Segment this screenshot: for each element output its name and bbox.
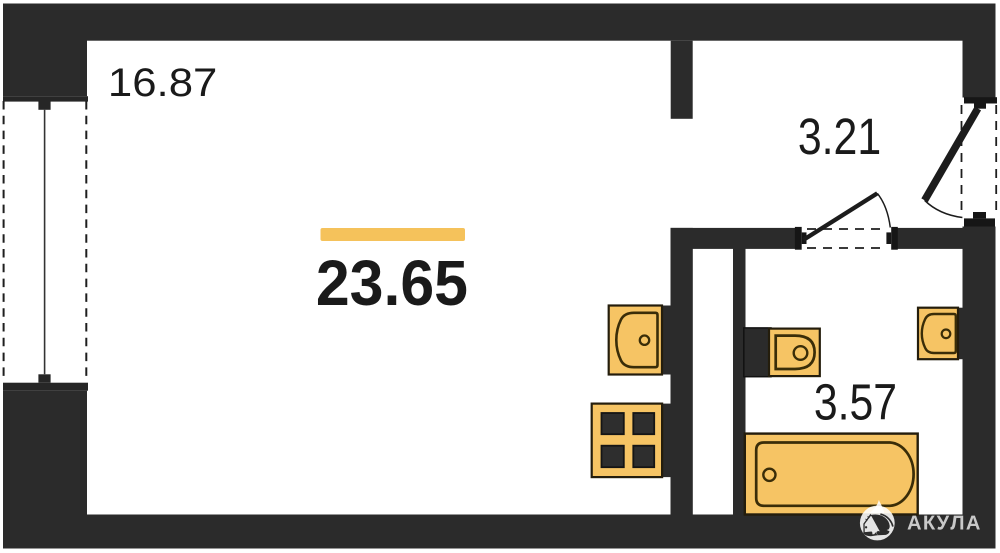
svg-text:23.65: 23.65	[316, 248, 468, 320]
svg-text:3.57: 3.57	[814, 373, 897, 430]
svg-text:3.21: 3.21	[798, 107, 881, 164]
svg-text:16.87: 16.87	[108, 60, 217, 105]
